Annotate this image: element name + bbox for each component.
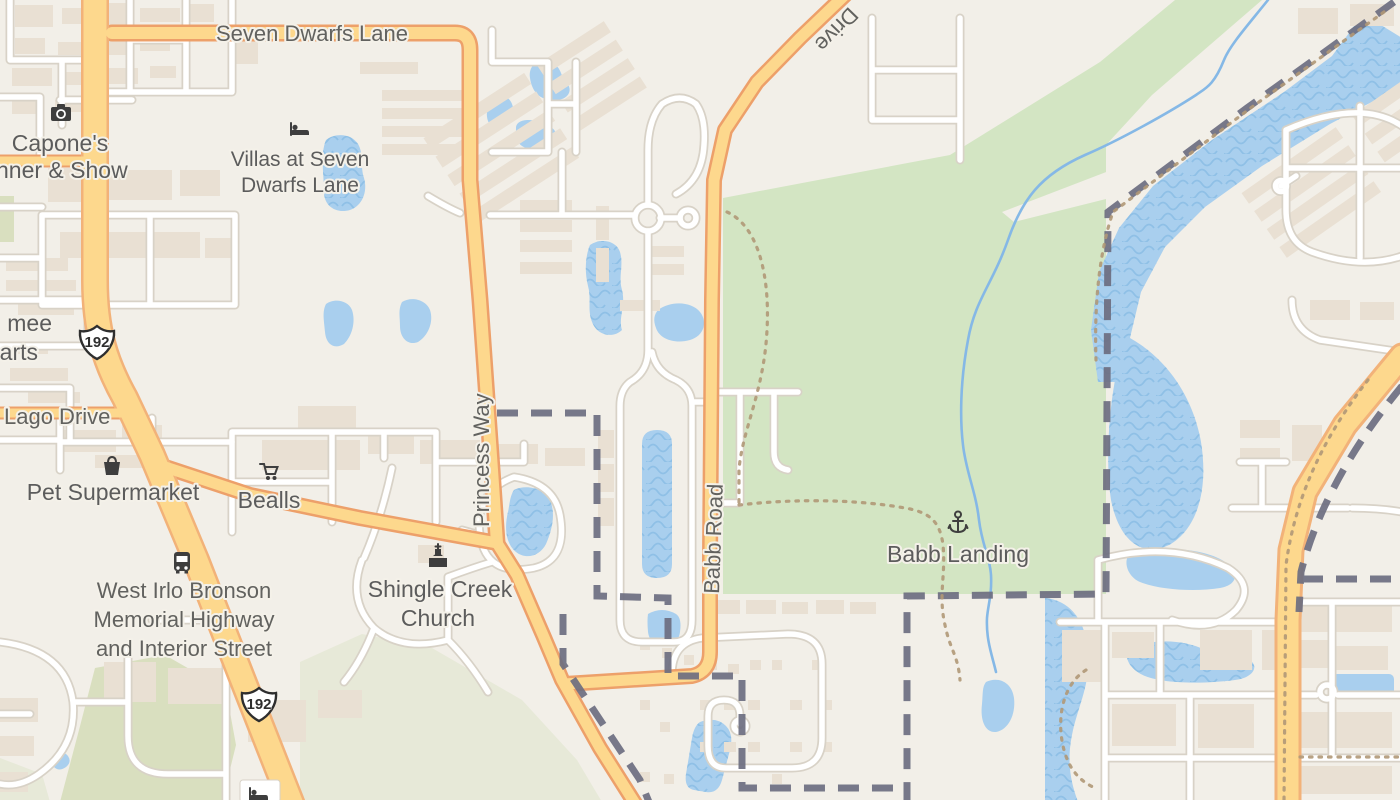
- poi-label-clipped-1: mee: [7, 310, 52, 336]
- poi-label-babb-landing: Babb Landing: [887, 541, 1029, 567]
- poi-label-shingle-1: Shingle Creek: [368, 576, 513, 602]
- map-viewport[interactable]: Seven Dwarfs Lane Drive Lago Drive Princ…: [0, 0, 1400, 800]
- poi-label-capones-2: nner & Show: [0, 157, 128, 183]
- poi-label-shingle-2: Church: [401, 605, 475, 631]
- poi-label-capones-1: Capone's: [12, 130, 108, 156]
- svg-text:192: 192: [246, 696, 271, 713]
- poi-label-villas-2: Dwarfs Lane: [241, 174, 359, 197]
- svg-text:192: 192: [84, 334, 109, 351]
- poi-label-villas-1: Villas at Seven: [231, 148, 370, 171]
- poi-label-bealls: Bealls: [238, 487, 301, 513]
- poi-hotel-bottom[interactable]: [240, 780, 280, 800]
- road-label-princess-way: Princess Way: [469, 393, 494, 527]
- road-label-west-irlo-2: Memorial Highway: [94, 607, 275, 632]
- road-label-lago-drive: Lago Drive: [4, 404, 110, 429]
- road-label-west-irlo-3: and Interior Street: [96, 636, 272, 661]
- bus-icon[interactable]: [174, 552, 190, 574]
- pond: [654, 303, 704, 341]
- road-label-west-irlo-1: West Irlo Bronson: [97, 578, 271, 603]
- poi-bus-stop[interactable]: [174, 552, 190, 574]
- poi-label-clipped-2: arts: [0, 339, 38, 365]
- map-canvas[interactable]: Seven Dwarfs Lane Drive Lago Drive Princ…: [0, 0, 1400, 800]
- road-label-seven-dwarfs-lane: Seven Dwarfs Lane: [216, 21, 408, 46]
- road-label-babb-road: Babb Road: [699, 483, 728, 594]
- poi-label-pet-supermarket: Pet Supermarket: [27, 479, 200, 505]
